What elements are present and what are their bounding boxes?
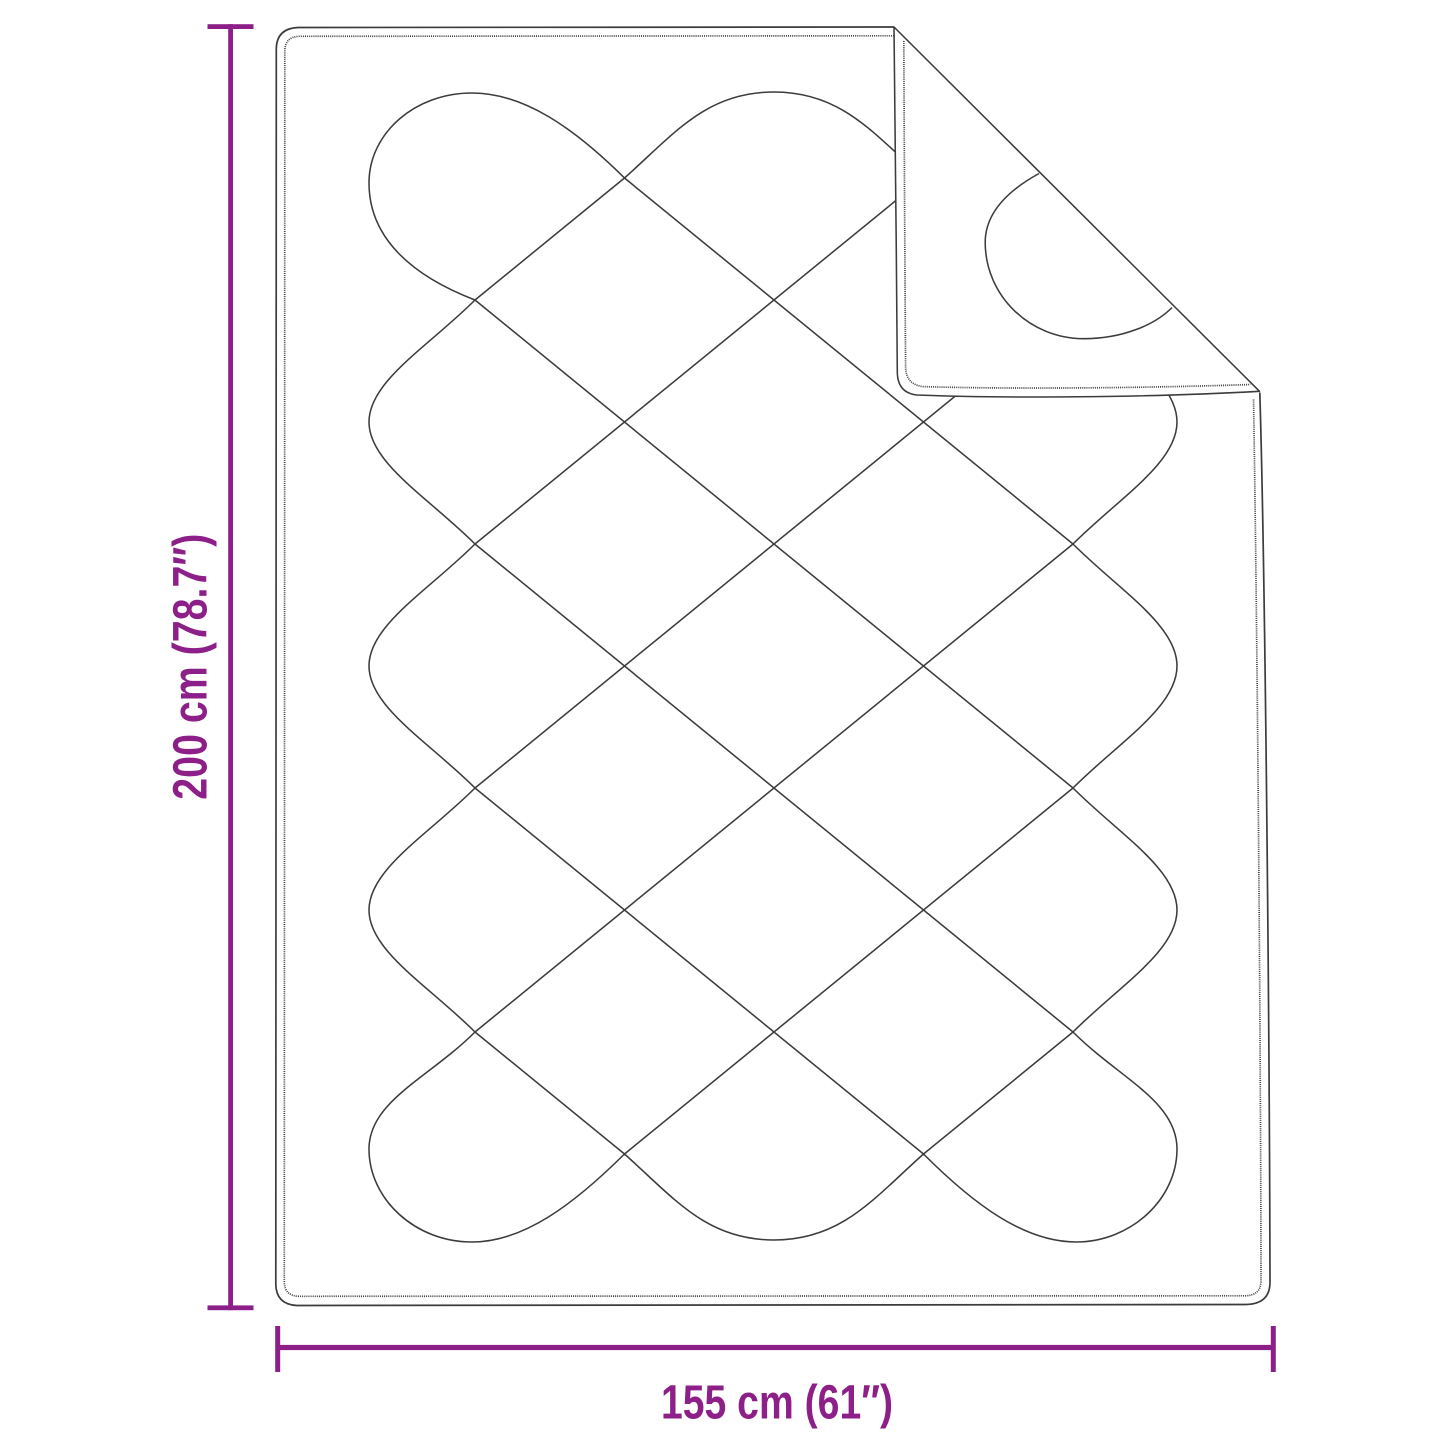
svg-text:155 cm (61″): 155 cm (61″) [661, 1376, 893, 1429]
svg-text:200 cm (78.7″): 200 cm (78.7″) [165, 534, 218, 800]
